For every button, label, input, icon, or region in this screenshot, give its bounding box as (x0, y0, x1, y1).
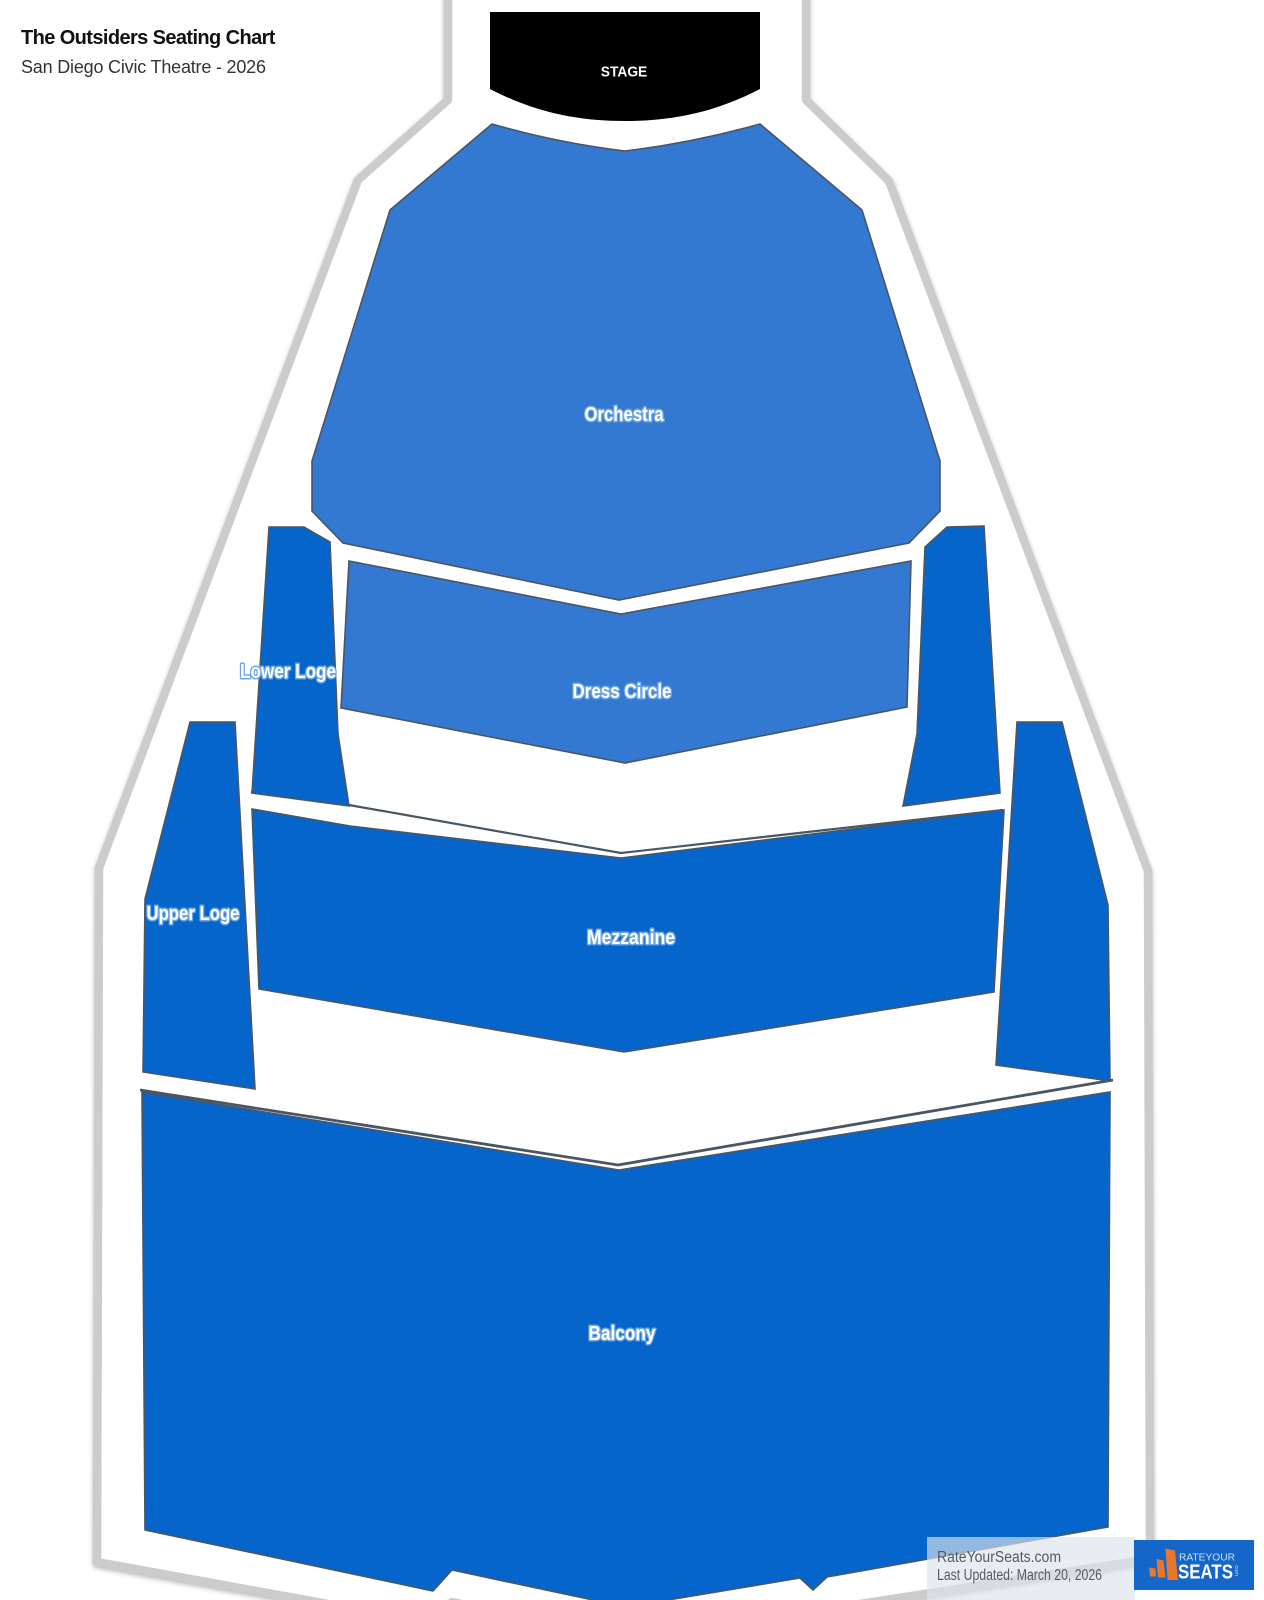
svg-text:Orchestra: Orchestra (585, 404, 665, 426)
svg-text:SEATS: SEATS (1178, 1562, 1233, 1584)
svg-text:Lower Loge: Lower Loge (240, 661, 336, 683)
svg-text:.com: .com (1233, 1564, 1239, 1576)
svg-text:Last Updated: March 20, 2026: Last Updated: March 20, 2026 (937, 1567, 1102, 1584)
svg-text:STAGE: STAGE (601, 64, 648, 81)
svg-text:RateYourSeats.com: RateYourSeats.com (937, 1549, 1061, 1566)
svg-text:Mezzanine: Mezzanine (587, 927, 675, 949)
svg-text:Balcony: Balcony (589, 1323, 657, 1345)
svg-text:Dress Circle: Dress Circle (573, 681, 672, 703)
svg-text:Upper Loge: Upper Loge (147, 903, 240, 925)
